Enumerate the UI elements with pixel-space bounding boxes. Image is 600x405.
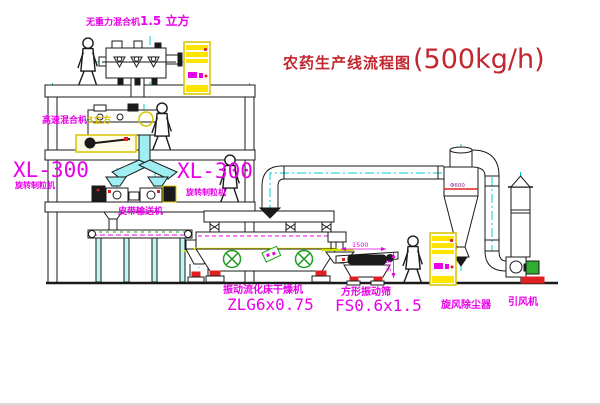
cyclone-diameter-dim: Φ600 xyxy=(450,183,465,189)
granulator-mid-model: XL-300 xyxy=(177,161,253,182)
screen-height-dim: 545 xyxy=(385,260,393,272)
granulator-left-model: XL-300 xyxy=(13,160,89,181)
control-cabinet-top xyxy=(184,42,210,94)
exhaust-duct xyxy=(260,166,444,218)
granulator-left-name: 旋转制粒机 xyxy=(15,182,55,190)
diagram-title-capacity: (500kg/h) xyxy=(413,44,545,75)
cyclone-label: 旋风除尘器 xyxy=(441,301,491,311)
screen-model: FS0.6x1.5 xyxy=(335,298,422,314)
control-cabinet-right xyxy=(430,233,456,285)
granulator-mid-name: 旋转制粒机 xyxy=(186,189,226,197)
spring-mounts xyxy=(210,222,331,232)
flow-diagram-canvas: Φ600 xyxy=(0,0,600,405)
dryer-model: ZLG6x0.75 xyxy=(227,297,314,313)
screen-length-dim: 1500 xyxy=(352,241,369,249)
belt-conveyor xyxy=(88,230,192,282)
fluid-bed-dryer xyxy=(194,211,338,282)
exhaust-stack xyxy=(508,176,533,257)
induced-draft-fan xyxy=(506,257,544,283)
diagram-title-text: 农药生产线流程图 xyxy=(283,52,411,73)
granulator-units xyxy=(92,186,176,202)
worker-figure-ground xyxy=(403,236,422,283)
fan-label: 引风机 xyxy=(508,298,538,308)
high-speed-mixer-label: 高速混合机3立方 xyxy=(42,110,111,126)
gravity-free-mixer-label: 无重力混合机1.5 立方 xyxy=(86,12,189,28)
belt-conveyor-label: 皮带输送机 xyxy=(118,208,163,217)
vibrating-screen: 1500 545 xyxy=(336,241,398,285)
diagram-title: 农药生产线流程图 (500kg/h) xyxy=(283,44,545,75)
worker-figure-roof xyxy=(78,38,97,85)
